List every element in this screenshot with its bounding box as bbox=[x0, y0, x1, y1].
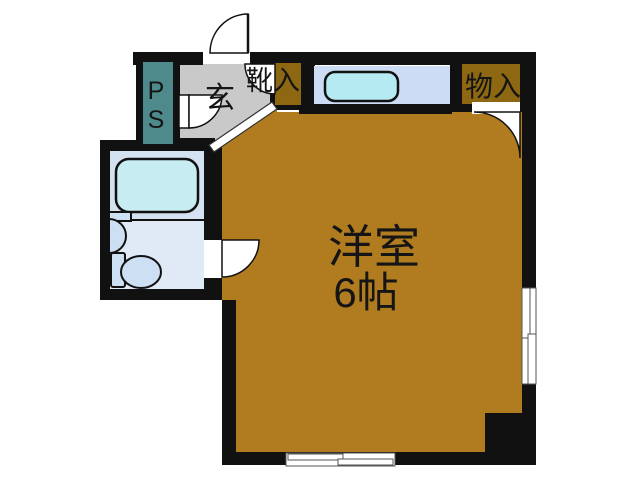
toilet-bowl bbox=[121, 256, 161, 288]
entrance-door-gap bbox=[203, 53, 250, 64]
bathroom-door-gap bbox=[204, 240, 222, 278]
storage-label: 物入 bbox=[465, 71, 521, 102]
shoe-storage-label: 靴入 bbox=[246, 66, 300, 96]
window-bottom-sash-left bbox=[288, 454, 343, 460]
floorplan-drawing: 玄 靴入 物入 P S 洋室 6帖 bbox=[0, 0, 640, 480]
entrance-label: 玄 bbox=[205, 82, 235, 115]
bathtub bbox=[116, 159, 198, 212]
kitchen-sink bbox=[325, 72, 398, 101]
pipe-space-label-p: P bbox=[148, 77, 165, 105]
pipe-space-label-s: S bbox=[148, 106, 165, 134]
genkan-side-door-leaf bbox=[179, 95, 189, 128]
window-right-sash-upper bbox=[522, 288, 530, 338]
floorplan-canvas: 玄 靴入 物入 P S 洋室 6帖 bbox=[0, 0, 640, 480]
main-room-size-label: 6帖 bbox=[333, 269, 398, 316]
window-right-sash-lower bbox=[528, 334, 536, 384]
entrance-door-swing bbox=[210, 14, 248, 53]
wall-west-lower bbox=[222, 300, 236, 465]
window-bottom-sash-right bbox=[338, 459, 393, 465]
main-room-label: 洋室 bbox=[328, 221, 420, 273]
